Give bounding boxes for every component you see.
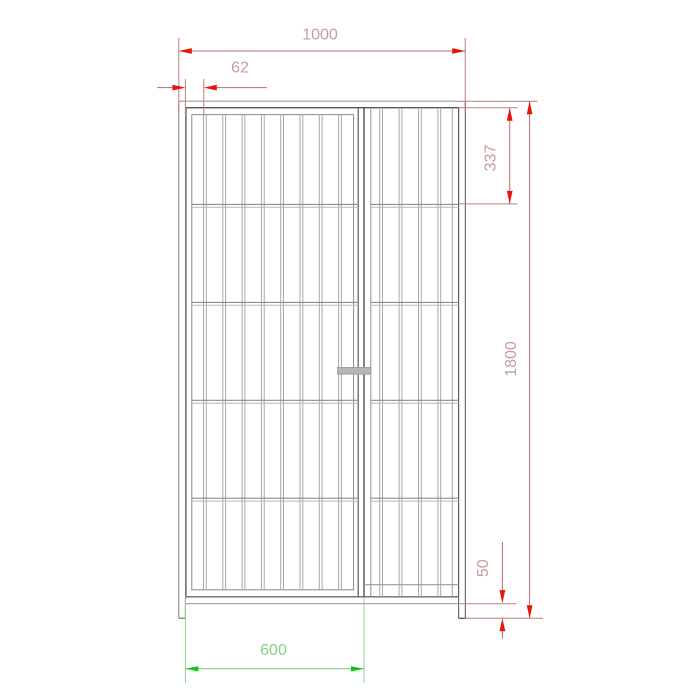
- svg-text:62: 62: [231, 60, 249, 77]
- svg-text:50: 50: [475, 559, 492, 577]
- svg-text:337: 337: [483, 145, 500, 172]
- svg-text:600: 600: [260, 642, 287, 659]
- svg-text:1800: 1800: [503, 341, 520, 377]
- svg-text:1000: 1000: [302, 27, 338, 44]
